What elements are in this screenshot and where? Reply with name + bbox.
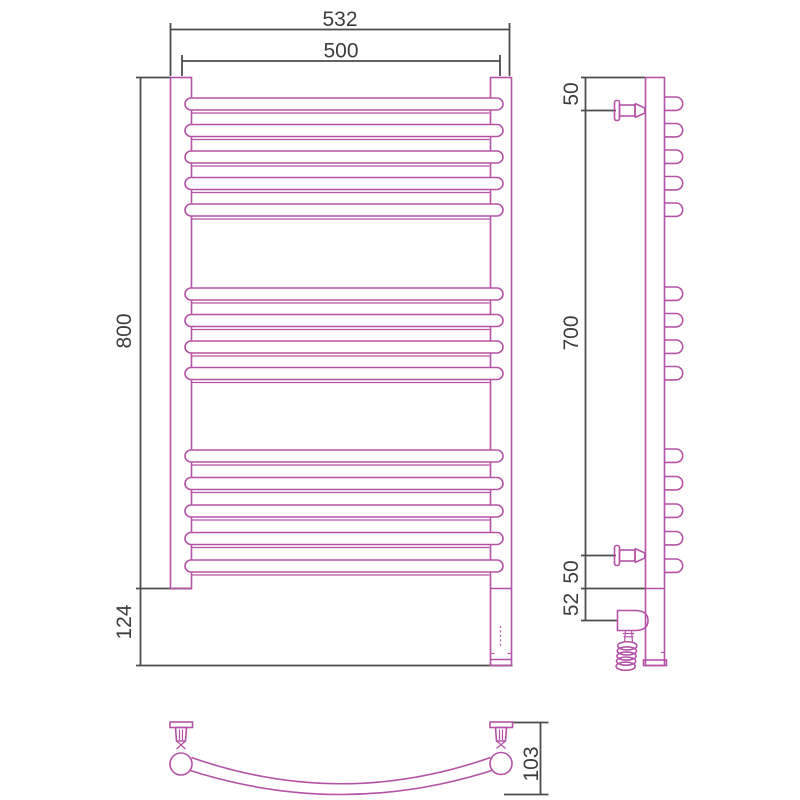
wall-bracket-top <box>615 101 645 121</box>
left-post-section <box>170 753 192 775</box>
heater-housing <box>618 611 649 631</box>
side-view <box>615 78 683 671</box>
front-view <box>171 78 512 666</box>
towel-bar-side-end <box>665 449 683 462</box>
towel-bar <box>185 560 503 572</box>
towel-bar <box>185 125 503 137</box>
bracket-joint <box>497 741 506 749</box>
side-post-foot <box>644 660 667 666</box>
towel-bar <box>185 533 503 545</box>
bracket-body <box>620 105 636 116</box>
dim-front-lower-height: 124 <box>113 604 136 639</box>
towel-bar <box>185 288 503 300</box>
towel-bar <box>185 315 503 327</box>
curved-bar-front-edge <box>192 758 491 784</box>
towel-bar <box>185 204 503 216</box>
towel-bar-side-end <box>665 559 683 572</box>
bottom-bracket-left <box>170 722 193 749</box>
curved-bar-back-edge <box>184 769 498 795</box>
side-post <box>646 78 665 666</box>
towel-bar-side-end <box>665 367 683 380</box>
towel-bar <box>185 478 503 490</box>
bracket-neck <box>176 728 187 742</box>
towel-bars-side-ends <box>665 97 683 572</box>
bracket-flange <box>490 722 513 728</box>
drawing-page: 532 500 800 124 50 700 50 52 103 <box>0 0 800 800</box>
towel-bar-side-end <box>665 340 683 353</box>
towel-bar-side-end <box>665 150 683 163</box>
towel-bar <box>185 368 503 380</box>
bracket-cone <box>635 104 645 118</box>
towel-bar-side-end <box>665 532 683 545</box>
towel-bars-front <box>185 98 503 575</box>
dim-bottom-depth: 103 <box>520 746 543 781</box>
dim-front-overall-width: 532 <box>322 8 357 31</box>
towel-bar-side-end <box>665 203 683 216</box>
towel-bar <box>185 178 503 190</box>
towel-bar <box>185 505 503 517</box>
towel-bar-side-end <box>665 504 683 517</box>
towel-bar-side-end <box>665 97 683 110</box>
towel-bar <box>185 98 503 110</box>
right-post-section <box>490 753 512 775</box>
technical-drawing: 532 500 800 124 50 700 50 52 103 <box>0 0 800 800</box>
bottom-view <box>170 722 513 795</box>
bracket-flange <box>170 722 193 728</box>
towel-bar <box>185 450 503 462</box>
towel-bar <box>185 151 503 163</box>
bracket-joint <box>177 741 186 749</box>
dim-side-bottom-offset: 50 <box>560 560 583 583</box>
bracket-body <box>620 550 636 561</box>
towel-bar-side-end <box>665 177 683 190</box>
bracket-cone <box>635 549 645 563</box>
towel-bar-side-end <box>665 124 683 137</box>
towel-bar-side-end <box>665 477 683 490</box>
towel-bar-side-end <box>665 287 683 300</box>
bottom-bracket-right <box>490 722 513 749</box>
towel-bar-side-end <box>665 314 683 327</box>
towel-bar <box>185 341 503 353</box>
dim-front-height: 800 <box>113 313 136 348</box>
dim-side-top-offset: 50 <box>560 82 583 105</box>
dim-front-axis-width: 500 <box>323 40 358 63</box>
cord-coil <box>616 662 635 670</box>
dim-side-bracket-span: 700 <box>560 315 583 350</box>
wall-bracket-bottom <box>615 546 645 566</box>
dim-side-heater-offset: 52 <box>560 593 583 616</box>
bracket-neck <box>496 728 507 742</box>
product-outline <box>170 78 683 795</box>
